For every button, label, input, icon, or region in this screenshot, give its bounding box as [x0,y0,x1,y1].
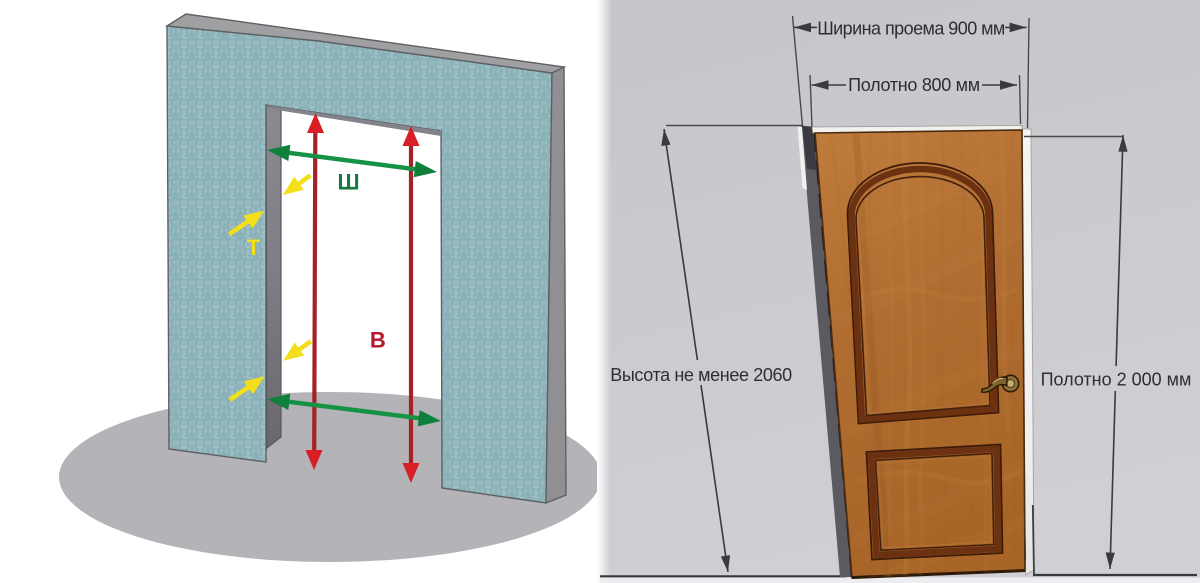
svg-text:Т: Т [247,235,261,260]
svg-text:Ш: Ш [337,170,359,195]
svg-text:В: В [370,328,386,353]
svg-text:Полотно 800 мм: Полотно 800 мм [848,75,980,95]
svg-text:Высота не менее 2060: Высота не менее 2060 [610,365,792,385]
svg-text:Полотно 2 000 мм: Полотно 2 000 мм [1041,370,1192,390]
svg-text:Ширина проема 900 мм: Ширина проема 900 мм [817,18,1005,38]
